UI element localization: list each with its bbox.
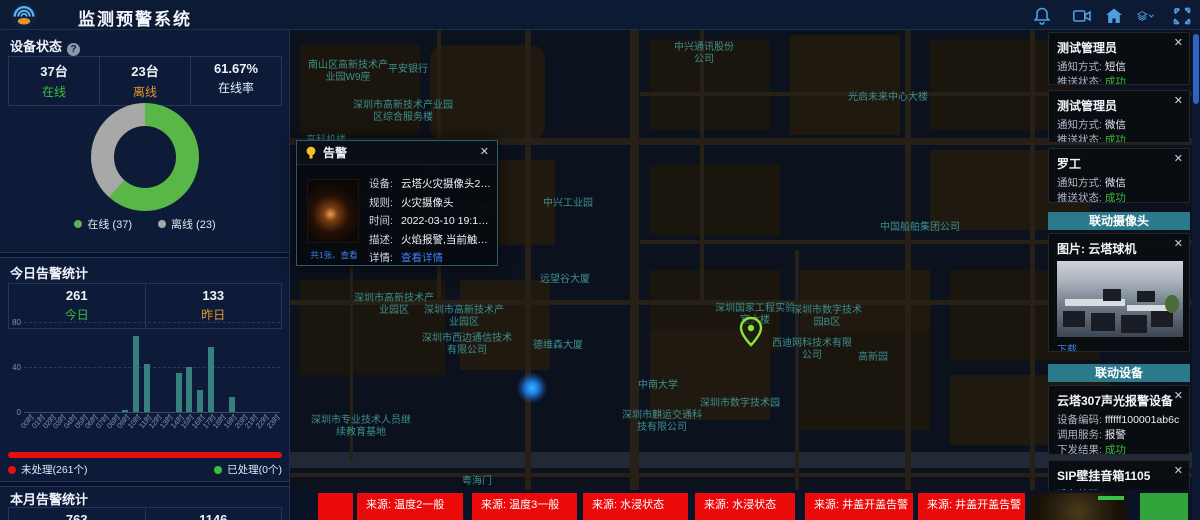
y-tick: 40 xyxy=(8,363,21,372)
map-label: 深圳市专业技术人员继续教育基地 xyxy=(310,415,412,439)
stat-month-1: 763 xyxy=(9,508,145,520)
home-icon[interactable] xyxy=(1104,6,1124,26)
bar xyxy=(208,347,214,412)
right-scrollbar xyxy=(1192,30,1200,520)
close-icon[interactable]: ✕ xyxy=(1174,38,1183,49)
device-status-stats: 37台 在线 23台 离线 61.67% 在线率 xyxy=(8,56,282,106)
alert-popup-body: 共1张、查看 设备:云塔火灾摄像头202 规则:火灾摄像头 时间:2022-03… xyxy=(297,165,497,181)
alert-thumb-caption[interactable]: 共1张、查看 xyxy=(305,249,363,261)
alert-popup-header: 告警 ✕ xyxy=(297,141,497,165)
map-label: 粤海门 xyxy=(462,476,492,488)
legend-offline: 离线 (23) xyxy=(158,216,216,232)
map-label: 中兴工业园 xyxy=(543,198,593,210)
alert-rule-row: 规则:火灾摄像头 xyxy=(369,194,491,213)
unhandled-label: 未处理(261个) xyxy=(8,462,88,477)
video-camera-icon[interactable] xyxy=(1072,6,1092,26)
legend-dot-online xyxy=(74,220,82,228)
video-thumbnail[interactable] xyxy=(1030,493,1127,520)
handled-dot xyxy=(214,466,222,474)
page-title: 监测预警系统 xyxy=(78,5,192,30)
stat-month-2: 1146 xyxy=(145,508,282,520)
map-label: 深圳市数字技术园 xyxy=(700,398,780,410)
help-icon[interactable]: ? xyxy=(67,43,80,56)
donut-hole xyxy=(114,126,176,188)
right-linkage-panel: ✕ 测试管理员 通知方式: 短信 推送状态: 成功 ✕ 测试管理员 通知方式: … xyxy=(1048,30,1190,520)
handled-label: 已处理(0个) xyxy=(214,462,282,477)
alert-snapshot-thumbnail[interactable] xyxy=(307,179,359,243)
linked-devices-header[interactable]: 联动设备 xyxy=(1048,364,1190,382)
month-alerts-title: 本月告警统计 xyxy=(10,489,88,508)
section-divider xyxy=(0,481,290,487)
camera-snapshot-card: ✕ 图片: 云塔球机 下载 xyxy=(1048,233,1190,352)
map-label: 中兴通讯股份公司 xyxy=(672,42,736,66)
camera-card-title: 图片: 云塔球机 xyxy=(1057,240,1181,257)
ticker-alert[interactable]: 来源: 井盖开盖告警 xyxy=(805,493,913,520)
unhandled-progress-bar xyxy=(8,452,282,458)
map-label: 深圳市高新技术产业园区综合服务楼 xyxy=(352,100,454,124)
bar-plot xyxy=(24,322,280,412)
bell-icon[interactable] xyxy=(1032,6,1052,26)
donut-chart xyxy=(91,103,199,211)
close-icon[interactable]: ✕ xyxy=(480,147,489,158)
ticker-alert[interactable]: 来源: 水浸状态 xyxy=(695,493,795,520)
device-cluster-marker[interactable] xyxy=(517,373,547,403)
linked-cameras-header[interactable]: 联动摄像头 xyxy=(1048,212,1190,230)
scrollbar-thumb[interactable] xyxy=(1193,34,1199,104)
notification-card: ✕ 测试管理员 通知方式: 短信 推送状态: 成功 xyxy=(1048,32,1190,85)
bar xyxy=(176,373,182,412)
alert-time-row: 时间:2022-03-10 19:13:07 xyxy=(369,212,491,231)
fullscreen-icon[interactable] xyxy=(1172,6,1192,26)
top-header: 监测预警系统 xyxy=(0,0,1200,30)
map-label: 中国船舶集团公司 xyxy=(880,222,960,234)
map-label: 西迪网科技术有限公司 xyxy=(772,338,852,362)
close-icon[interactable]: ✕ xyxy=(1174,96,1183,107)
ticker-alert[interactable] xyxy=(318,493,353,520)
close-icon[interactable]: ✕ xyxy=(1174,391,1183,402)
view-details-link[interactable]: 查看详情 xyxy=(401,249,443,268)
map-label: 平安银行 xyxy=(388,64,428,76)
y-tick: 80 xyxy=(8,318,21,327)
linked-device-card: ✕ 云塔307声光报警设备 设备编码: ffffff100001ab6c 调用服… xyxy=(1048,385,1190,455)
left-stats-panel: 设备状态? 37台 在线 23台 离线 61.67% 在线率 在线 (37) xyxy=(0,30,290,520)
legend-dot-offline xyxy=(158,220,166,228)
map-label: 德维森大厦 xyxy=(533,340,583,352)
notification-card: ✕ 罗工 通知方式: 微信 推送状态: 成功 xyxy=(1048,148,1190,203)
close-icon[interactable]: ✕ xyxy=(1174,154,1183,165)
map-label: 深圳市高新技术产业园区 xyxy=(420,305,508,329)
green-video-thumbnail[interactable] xyxy=(1140,493,1188,520)
stat-online: 37台 在线 xyxy=(9,57,99,105)
y-tick: 0 xyxy=(8,408,21,417)
bar xyxy=(133,336,139,413)
alert-device-row: 设备:云塔火灾摄像头202 xyxy=(369,175,491,194)
alert-ticker: 来源: 温度2一般 来源: 温度3一般 来源: 水浸状态 来源: 水浸状态 来源… xyxy=(290,490,1192,520)
download-link[interactable]: 下载 xyxy=(1057,341,1077,352)
map-label: 深圳市数字技术园B区 xyxy=(790,305,864,329)
bar xyxy=(197,390,203,413)
map-label: 深圳市麒运交通科技有限公司 xyxy=(618,410,706,434)
close-icon[interactable]: ✕ xyxy=(1174,466,1183,477)
monitoring-dashboard: 监测预警系统 xyxy=(0,0,1200,520)
camera-snapshot-image[interactable] xyxy=(1057,261,1183,337)
location-pin-icon[interactable] xyxy=(738,316,764,348)
legend-online: 在线 (37) xyxy=(74,216,132,232)
map-label: 中南大学 xyxy=(638,380,678,392)
ticker-alert[interactable]: 来源: 温度3一般 xyxy=(472,493,577,520)
ticker-alert[interactable]: 来源: 温度2一般 xyxy=(357,493,463,520)
stat-online-rate: 61.67% 在线率 xyxy=(190,57,281,105)
ticker-alert[interactable]: 来源: 水浸状态 xyxy=(583,493,688,520)
section-divider xyxy=(0,252,290,258)
alarm-bulb-icon xyxy=(305,146,317,160)
close-icon[interactable]: ✕ xyxy=(1174,239,1183,250)
map-label: 远望谷大厦 xyxy=(540,274,590,286)
alert-popup-title: 告警 xyxy=(323,144,474,161)
unhandled-dot xyxy=(8,466,16,474)
layers-dropdown-icon[interactable] xyxy=(1136,6,1168,26)
unhandled-progress-fill xyxy=(8,452,282,458)
device-status-title: 设备状态? xyxy=(10,36,80,56)
map-label: 南山区高新技术产业园W9座 xyxy=(306,60,390,84)
alert-popup: 告警 ✕ 共1张、查看 设备:云塔火灾摄像头202 规则:火灾摄像头 时间:20… xyxy=(296,140,498,266)
bar xyxy=(186,367,192,412)
bar xyxy=(144,364,150,412)
alert-desc-row: 描述:火焰报警,当前触发值为... xyxy=(369,231,491,250)
map-label: 深圳市西边通信技术有限公司 xyxy=(418,333,516,357)
map-label: 光启未来中心大楼 xyxy=(848,92,928,104)
today-alerts-title: 今日告警统计 xyxy=(10,263,88,282)
bar xyxy=(229,397,235,412)
donut-legend: 在线 (37) 离线 (23) xyxy=(0,216,290,232)
map-label: 高新园 xyxy=(858,352,888,364)
month-alerts-stats: 763 1146 xyxy=(8,507,282,520)
progress-legend: 未处理(261个) 已处理(0个) xyxy=(8,462,282,477)
ticker-alert[interactable]: 来源: 井盖开盖告警 xyxy=(918,493,1025,520)
stat-offline: 23台 离线 xyxy=(99,57,190,105)
hourly-alert-bar-chart: 80 40 0 00时01时02时03时04时05时06时07时08时09时10… xyxy=(8,318,282,446)
alert-detail-row: 详情:查看详情 xyxy=(369,249,491,268)
app-logo-icon xyxy=(10,1,38,29)
notification-card: ✕ 测试管理员 通知方式: 微信 推送状态: 成功 xyxy=(1048,90,1190,143)
